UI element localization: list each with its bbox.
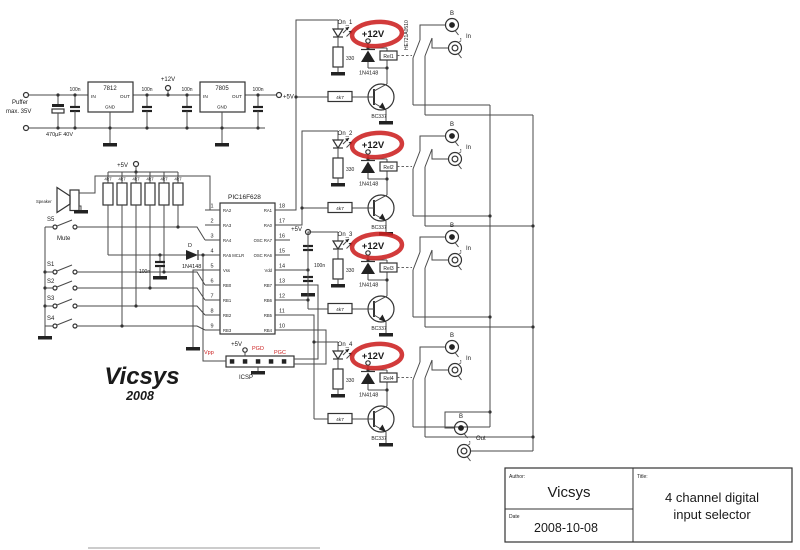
relay-label: Rel2 xyxy=(383,165,394,171)
svg-text:2: 2 xyxy=(210,219,213,225)
svg-text:J: J xyxy=(459,250,462,256)
svg-text:4k7: 4k7 xyxy=(146,177,154,182)
channel-2-labels: On_2 330 +12V 1N4148 Rel2 BC337 4k7 xyxy=(336,131,394,231)
relay-label: Rel3 xyxy=(383,266,394,272)
svg-text:RB1: RB1 xyxy=(223,298,232,303)
svg-text:S4: S4 xyxy=(47,316,55,322)
icsp-label: ICSP xyxy=(239,375,253,381)
svg-text:RB6: RB6 xyxy=(264,298,273,303)
base-resistor-value: 4k7 xyxy=(336,307,344,313)
svg-text:16: 16 xyxy=(279,234,285,240)
svg-text:11: 11 xyxy=(279,309,285,315)
regulator-7805: 7805 IN OUT GND xyxy=(200,82,245,147)
svg-text:B: B xyxy=(450,11,454,17)
svg-text:S3: S3 xyxy=(47,296,55,302)
transistor-label: BC337 xyxy=(371,326,387,332)
flyback-diode-label: 1N4148 xyxy=(359,393,378,399)
svg-text:4: 4 xyxy=(210,249,213,255)
led-label: On_3 xyxy=(338,232,353,238)
pullup-r1: 4k7 xyxy=(103,172,113,255)
v12-node-label: +12V xyxy=(362,29,385,40)
svg-text:4k7: 4k7 xyxy=(132,177,140,182)
svg-text:14: 14 xyxy=(279,264,285,270)
icsp-pgd-label: PGD xyxy=(252,346,264,352)
svg-text:B: B xyxy=(450,122,454,128)
title-line1: 4 channel digital xyxy=(665,490,759,505)
relay-driver-channels: On_1 330 +12V 1N4148 Rel1 HE721A0510 BC3… xyxy=(290,20,535,451)
svg-text:RA5 MCLR: RA5 MCLR xyxy=(223,253,244,258)
svg-text:8: 8 xyxy=(210,309,213,315)
svg-text:4k7: 4k7 xyxy=(160,177,168,182)
input-terminal-minus xyxy=(24,126,29,131)
svg-text:RA3: RA3 xyxy=(223,223,232,228)
bigcap-label: 470µF 40V xyxy=(46,132,73,138)
svg-text:3: 3 xyxy=(210,234,213,240)
icsp-vpp-label: Vpp xyxy=(204,350,214,356)
schematic-canvas: Puffer max. 35V 470µF 40V 100n 100n xyxy=(0,0,800,550)
svg-text:RB2: RB2 xyxy=(223,313,232,318)
flyback-diode-label: 1N4148 xyxy=(359,182,378,188)
svg-text:RB5: RB5 xyxy=(264,313,273,318)
speaker: Speaker xyxy=(36,176,210,214)
svg-text:4k7: 4k7 xyxy=(104,177,112,182)
title-line2: input selector xyxy=(673,507,751,522)
pullup-r2: 4k7 xyxy=(117,172,127,326)
speaker-label: Speaker xyxy=(36,199,52,204)
mclr-diode-designator: D xyxy=(188,243,192,249)
psu-cap-3: 100n xyxy=(181,87,192,128)
v12-node-label: +12V xyxy=(362,140,385,151)
base-resistor-value: 4k7 xyxy=(336,206,344,212)
svg-text:4k7: 4k7 xyxy=(174,177,182,182)
svg-text:7805: 7805 xyxy=(215,86,229,92)
svg-text:In: In xyxy=(466,246,471,252)
svg-text:In: In xyxy=(466,34,471,40)
max-voltage-label: max. 35V xyxy=(6,109,31,115)
led-label: On_2 xyxy=(338,131,353,137)
decoupling-v5-label: +5V xyxy=(291,227,302,233)
transistor-label: BC337 xyxy=(371,436,387,442)
icsp-v5-label: +5V xyxy=(231,342,242,348)
led-resistor-value: 330 xyxy=(346,56,355,62)
svg-text:GND: GND xyxy=(217,105,228,110)
base-resistor-value: 4k7 xyxy=(336,417,344,423)
svg-text:100n: 100n xyxy=(69,87,80,93)
date-label: Date xyxy=(509,514,520,520)
v12-label: +12V xyxy=(161,77,175,83)
led-label: On_1 xyxy=(338,20,353,26)
psu-cap-1: 100n xyxy=(69,87,80,128)
pullup-r6: 4k7 xyxy=(173,172,183,227)
svg-text:13: 13 xyxy=(279,279,285,285)
mcu-left-pins: 1 2 3 4 5 6 7 8 9 RA2 RA3 RA4 RA5 MCLR V… xyxy=(205,204,244,334)
svg-text:Mute: Mute xyxy=(57,236,71,242)
v5-label: +5V xyxy=(283,95,294,101)
title-block: Author: Vicsys Date 2008-10-08 Title: 4 … xyxy=(505,468,792,542)
switch-s4: S4 xyxy=(45,316,205,330)
icsp-pgc-label: PGC xyxy=(274,350,286,356)
output-buses xyxy=(445,105,535,451)
decoupling-cap-label: 100n xyxy=(314,263,325,269)
input-terminal-plus xyxy=(24,93,29,98)
svg-text:15: 15 xyxy=(279,249,285,255)
logo-year: 2008 xyxy=(125,389,154,403)
psu-cap-2: 100n xyxy=(141,87,152,128)
psu-cap-4: 100n xyxy=(252,87,263,128)
svg-text:Vdd: Vdd xyxy=(265,268,273,273)
v12-node-label: +12V xyxy=(362,241,385,252)
svg-text:RA2: RA2 xyxy=(223,208,232,213)
regulator-7812: 7812 IN OUT GND xyxy=(88,82,133,147)
puffer-label: Puffer xyxy=(12,100,28,106)
svg-text:In: In xyxy=(466,356,471,362)
svg-text:OUT: OUT xyxy=(120,94,130,100)
mclr-diode-label: 1N4148 xyxy=(182,264,201,270)
svg-text:S2: S2 xyxy=(47,279,55,285)
svg-text:Vss: Vss xyxy=(223,268,230,273)
svg-text:6: 6 xyxy=(210,279,213,285)
svg-text:RB7: RB7 xyxy=(264,283,273,288)
svg-text:RB3: RB3 xyxy=(223,328,232,333)
channel-4-labels: On_4 330 +12V 1N4148 Rel4 BC337 4k7 xyxy=(336,342,394,442)
mclr-cap-label: 100n xyxy=(139,269,150,275)
svg-text:17: 17 xyxy=(279,219,285,225)
svg-text:RB0: RB0 xyxy=(223,283,232,288)
rca-connectors: B J In B J In B J In B J In B J Out xyxy=(446,11,487,461)
author-label: Author: xyxy=(509,474,525,480)
svg-text:GND: GND xyxy=(105,105,116,110)
led-resistor-value: 330 xyxy=(346,268,355,274)
svg-text:18: 18 xyxy=(279,204,285,210)
svg-text:5: 5 xyxy=(210,264,213,270)
title-label: Title: xyxy=(637,474,648,480)
relay-label: Rel4 xyxy=(383,376,394,382)
svg-text:OSC RA6: OSC RA6 xyxy=(254,253,273,258)
logo-name: Vicsys xyxy=(104,363,179,390)
svg-text:J: J xyxy=(459,38,462,44)
svg-text:RA4: RA4 xyxy=(223,238,232,243)
relay-label: Rel1 xyxy=(383,54,394,60)
pullup-rail-terminal xyxy=(134,162,139,167)
svg-text:RB4: RB4 xyxy=(264,328,273,333)
channel-3-labels: On_3 330 +12V 1N4148 Rel3 BC337 4k7 xyxy=(336,232,394,332)
schematic-sheet: Puffer max. 35V 470µF 40V 100n 100n xyxy=(0,0,800,550)
svg-text:4k7: 4k7 xyxy=(118,177,126,182)
relay-part-number: HE721A0510 xyxy=(404,20,410,50)
svg-text:B: B xyxy=(459,414,463,420)
svg-text:OSC RA7: OSC RA7 xyxy=(254,238,273,243)
svg-text:1: 1 xyxy=(210,204,213,210)
base-resistor-value: 4k7 xyxy=(336,95,344,101)
transistor-label: BC337 xyxy=(371,114,387,120)
led-resistor-value: 330 xyxy=(346,378,355,384)
svg-text:Out: Out xyxy=(476,436,486,442)
svg-text:100n: 100n xyxy=(141,87,152,93)
svg-text:7812: 7812 xyxy=(103,86,117,92)
switch-s5-mute: S5 Mute xyxy=(45,217,205,242)
switch-s2: S2 xyxy=(45,279,205,300)
svg-text:10: 10 xyxy=(279,324,285,330)
led-label: On_4 xyxy=(338,342,353,348)
logo: Vicsys 2008 xyxy=(104,363,179,403)
svg-text:J: J xyxy=(459,149,462,155)
svg-text:J: J xyxy=(459,360,462,366)
mcu-right-pins: 18 17 16 15 14 13 12 11 10 RA1 RA0 OSC R… xyxy=(254,204,290,334)
switch-s3: S3 xyxy=(45,296,205,315)
microcontroller: PIC16F628 1 2 3 4 5 6 7 8 9 RA2 RA3 RA4 … xyxy=(186,194,290,351)
svg-text:IN: IN xyxy=(91,94,96,100)
svg-text:B: B xyxy=(450,333,454,339)
flyback-diode-label: 1N4148 xyxy=(359,71,378,77)
svg-text:J: J xyxy=(468,441,471,447)
switch-s1: S1 xyxy=(45,262,205,285)
transistor-label: BC337 xyxy=(371,225,387,231)
rca-labels-out: B J Out xyxy=(459,414,486,447)
v12-node-label: +12V xyxy=(362,351,385,362)
svg-text:S5: S5 xyxy=(47,217,55,223)
v5-terminal xyxy=(277,93,282,98)
author-value: Vicsys xyxy=(547,484,590,501)
mcu-name: PIC16F628 xyxy=(228,194,261,201)
v12-terminal xyxy=(166,86,171,91)
svg-text:OUT: OUT xyxy=(232,94,242,100)
svg-text:RA1: RA1 xyxy=(264,208,273,213)
svg-text:RA0: RA0 xyxy=(264,223,273,228)
svg-text:100n: 100n xyxy=(252,87,263,93)
svg-text:B: B xyxy=(450,223,454,229)
pullup-resistor-bank: +5V 4k7 4k7 4k7 4k7 4k7 xyxy=(103,162,183,327)
power-supply-section: Puffer max. 35V 470µF 40V 100n 100n xyxy=(6,77,294,147)
svg-text:S1: S1 xyxy=(47,262,55,268)
svg-text:IN: IN xyxy=(203,94,208,100)
pullup-r3: 4k7 xyxy=(131,172,141,306)
date-value: 2008-10-08 xyxy=(534,521,598,535)
pullup-rail-label: +5V xyxy=(117,163,128,169)
svg-text:12: 12 xyxy=(279,294,285,300)
mclr-network: D 1N4148 100n xyxy=(108,243,205,280)
flyback-diode-label: 1N4148 xyxy=(359,283,378,289)
svg-text:In: In xyxy=(466,145,471,151)
svg-text:9: 9 xyxy=(210,324,213,330)
svg-text:100n: 100n xyxy=(181,87,192,93)
svg-text:7: 7 xyxy=(210,294,213,300)
led-resistor-value: 330 xyxy=(346,167,355,173)
